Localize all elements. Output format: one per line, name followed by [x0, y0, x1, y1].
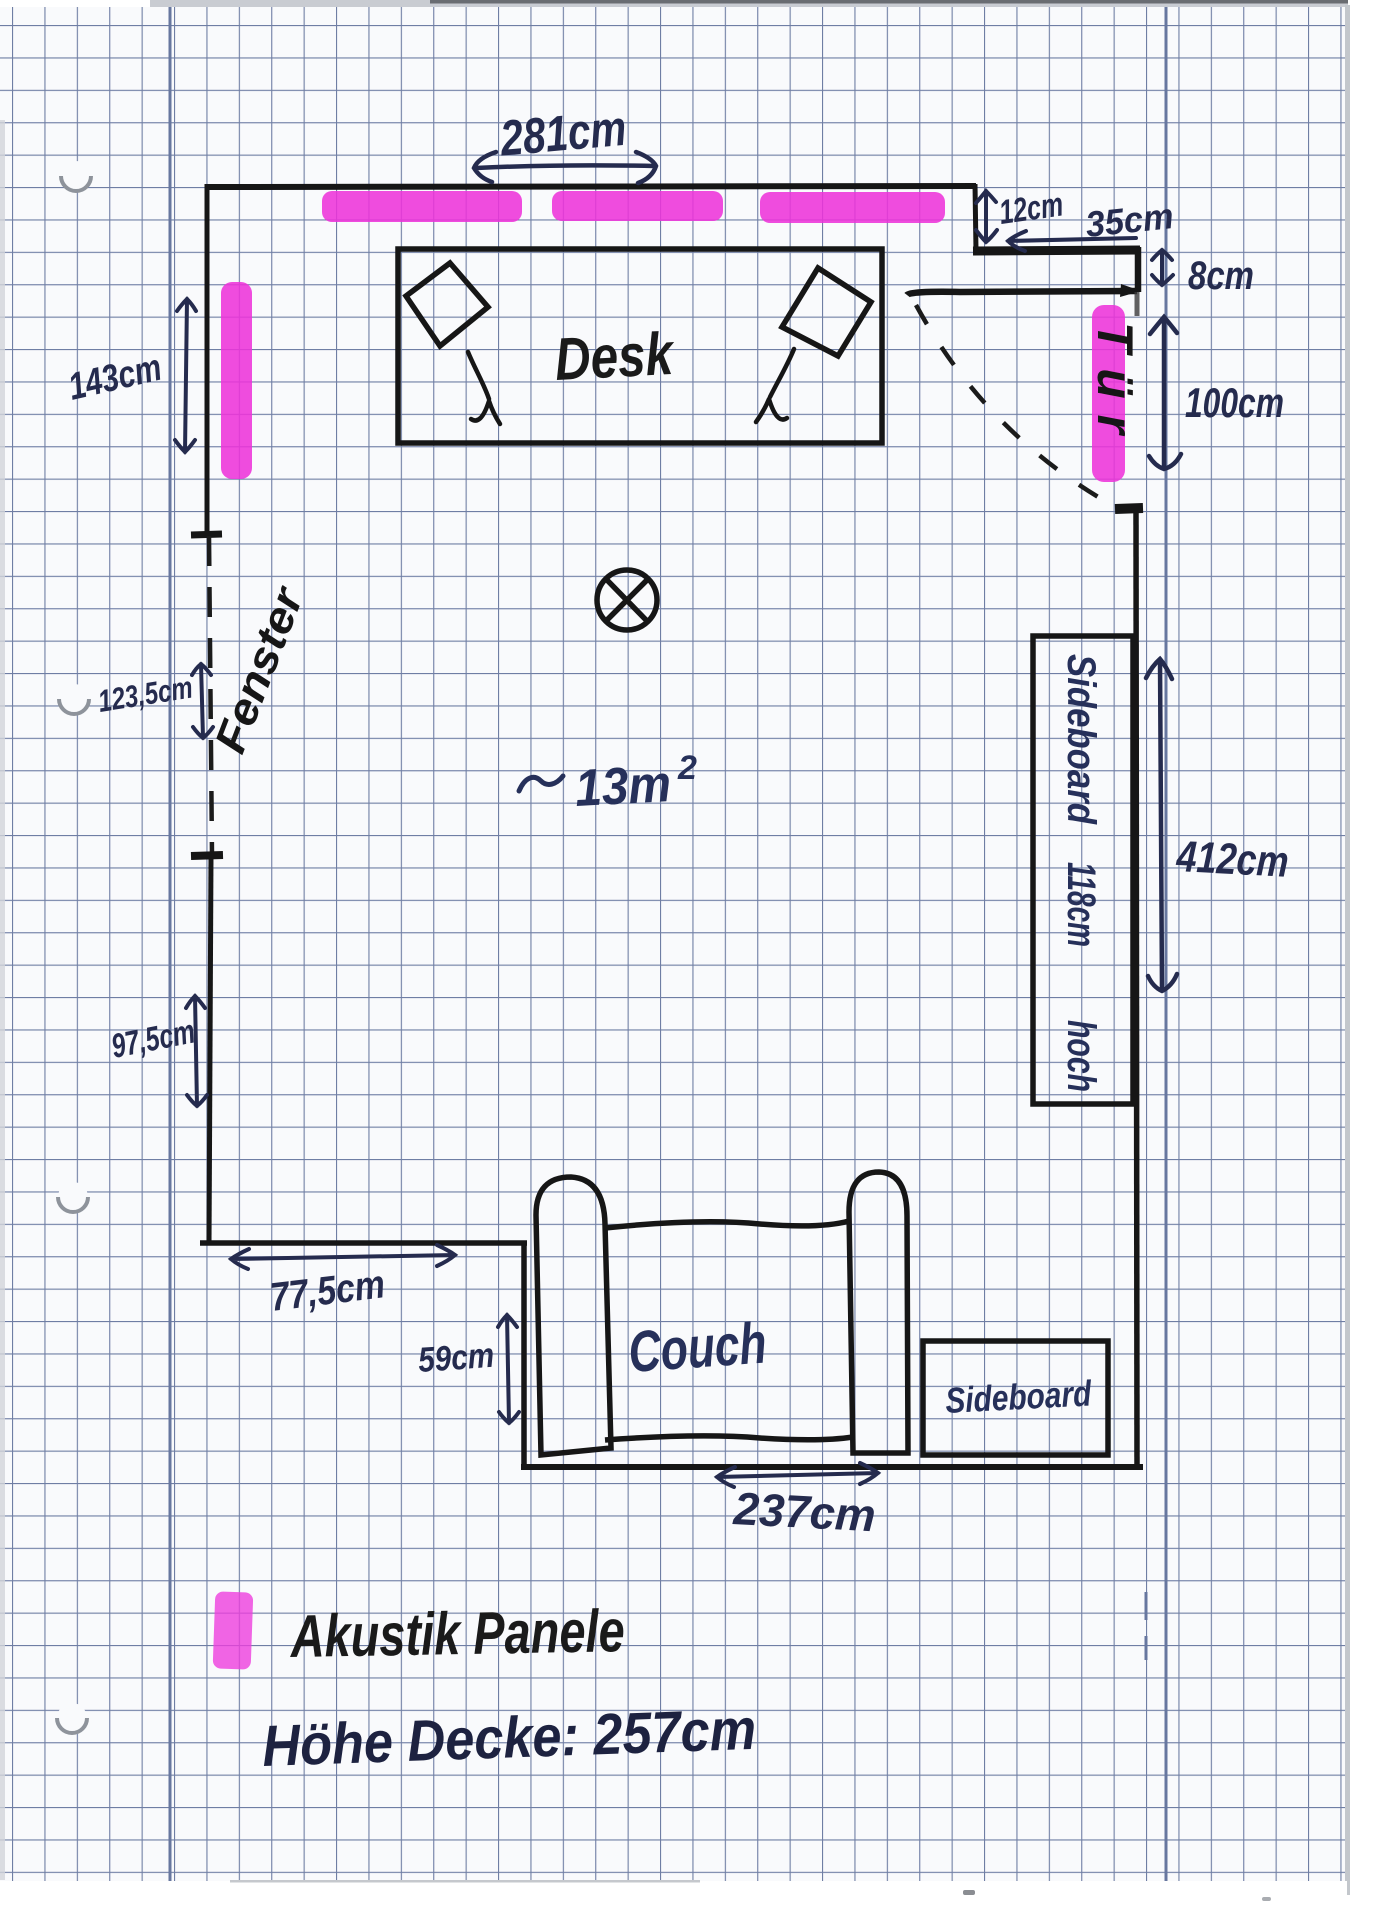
svg-text:59cm: 59cm — [417, 1336, 496, 1380]
svg-text:Sideboard: Sideboard — [944, 1372, 1093, 1421]
svg-text:Akustik Panele: Akustik Panele — [288, 1597, 625, 1670]
svg-text:2: 2 — [677, 749, 697, 787]
svg-text:412cm: 412cm — [1175, 832, 1290, 887]
svg-text:100cm: 100cm — [1185, 379, 1284, 426]
svg-text:237cm: 237cm — [731, 1482, 877, 1541]
svg-text:281cm: 281cm — [497, 100, 628, 167]
svg-text:Couch: Couch — [626, 1311, 768, 1385]
svg-text:Desk: Desk — [553, 320, 677, 393]
svg-text:Tür: Tür — [1087, 322, 1143, 437]
svg-text:13m: 13m — [574, 755, 673, 818]
svg-text:8cm: 8cm — [1188, 254, 1254, 298]
svg-text:Sideboard118cmhoch: Sideboard118cmhoch — [1059, 654, 1103, 1092]
